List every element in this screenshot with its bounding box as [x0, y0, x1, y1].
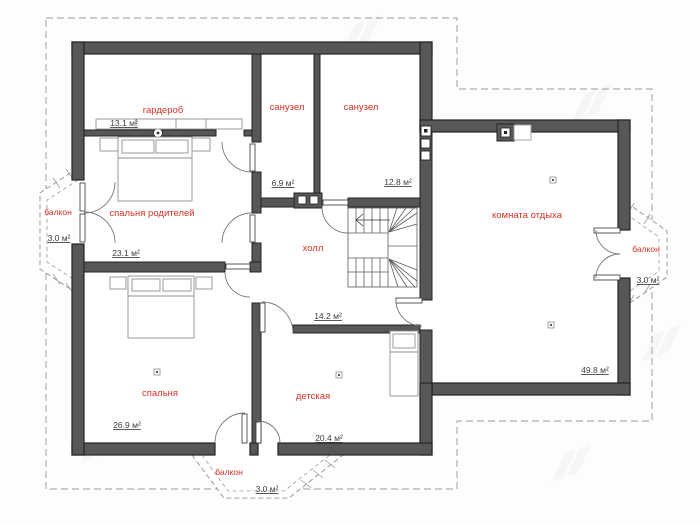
staircase: [348, 208, 417, 287]
kids-bed: [390, 331, 418, 396]
label-wardrobe: гардероб: [143, 105, 184, 116]
label-master-bedroom: спальня родителей: [109, 208, 194, 219]
floor-plan-canvas: гардероб 13.1 м² санузел 6.9 м² санузел …: [0, 0, 700, 525]
area-balcony-bottom: 3.0 м²: [256, 484, 279, 494]
label-balcony-bottom: балкон: [215, 467, 243, 477]
area-kids-room: 20.4 м²: [315, 433, 343, 443]
area-hall: 14.2 м²: [314, 311, 342, 321]
label-bedroom: спальня: [142, 388, 178, 399]
area-bedroom: 26.9 м²: [113, 420, 141, 430]
label-bath-small: санузел: [270, 102, 305, 113]
chimney-lounge: [497, 124, 531, 141]
partition-port: [154, 129, 163, 138]
vent-lounge-wall: [421, 126, 431, 160]
area-balcony-left: 3.0 м²: [48, 233, 71, 243]
label-balcony-right: балкон: [632, 244, 660, 254]
floor-plan: гардероб 13.1 м² санузел 6.9 м² санузел …: [0, 0, 700, 525]
area-bath-small: 6.9 м²: [272, 178, 295, 188]
area-wardrobe: 13.1 м²: [110, 118, 138, 128]
area-master-bedroom: 23.1 м²: [112, 248, 140, 258]
area-bath-large: 12.8 м²: [384, 177, 412, 187]
area-balcony-right: 3.0 м²: [637, 275, 660, 285]
label-balcony-left: балкон: [44, 207, 72, 217]
label-hall: холл: [303, 243, 324, 254]
label-lounge: комната отдыха: [492, 210, 563, 221]
label-bath-large: санузел: [344, 102, 379, 113]
label-kids-room: детская: [296, 391, 330, 402]
area-lounge: 49.8 м²: [581, 365, 609, 375]
